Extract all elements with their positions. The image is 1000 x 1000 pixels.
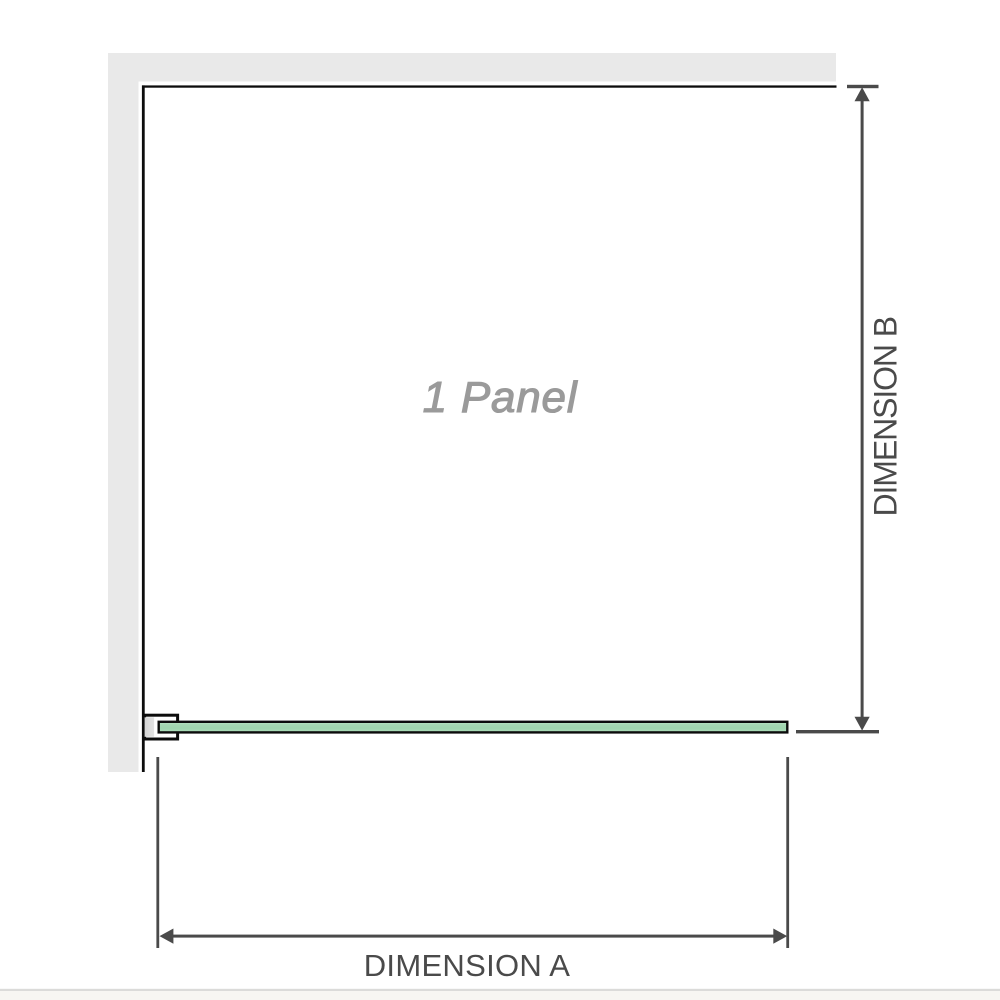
svg-text:DIMENSION B: DIMENSION B	[868, 317, 904, 516]
svg-text:DIMENSION A: DIMENSION A	[364, 948, 571, 983]
svg-text:1 Panel: 1 Panel	[423, 373, 578, 422]
